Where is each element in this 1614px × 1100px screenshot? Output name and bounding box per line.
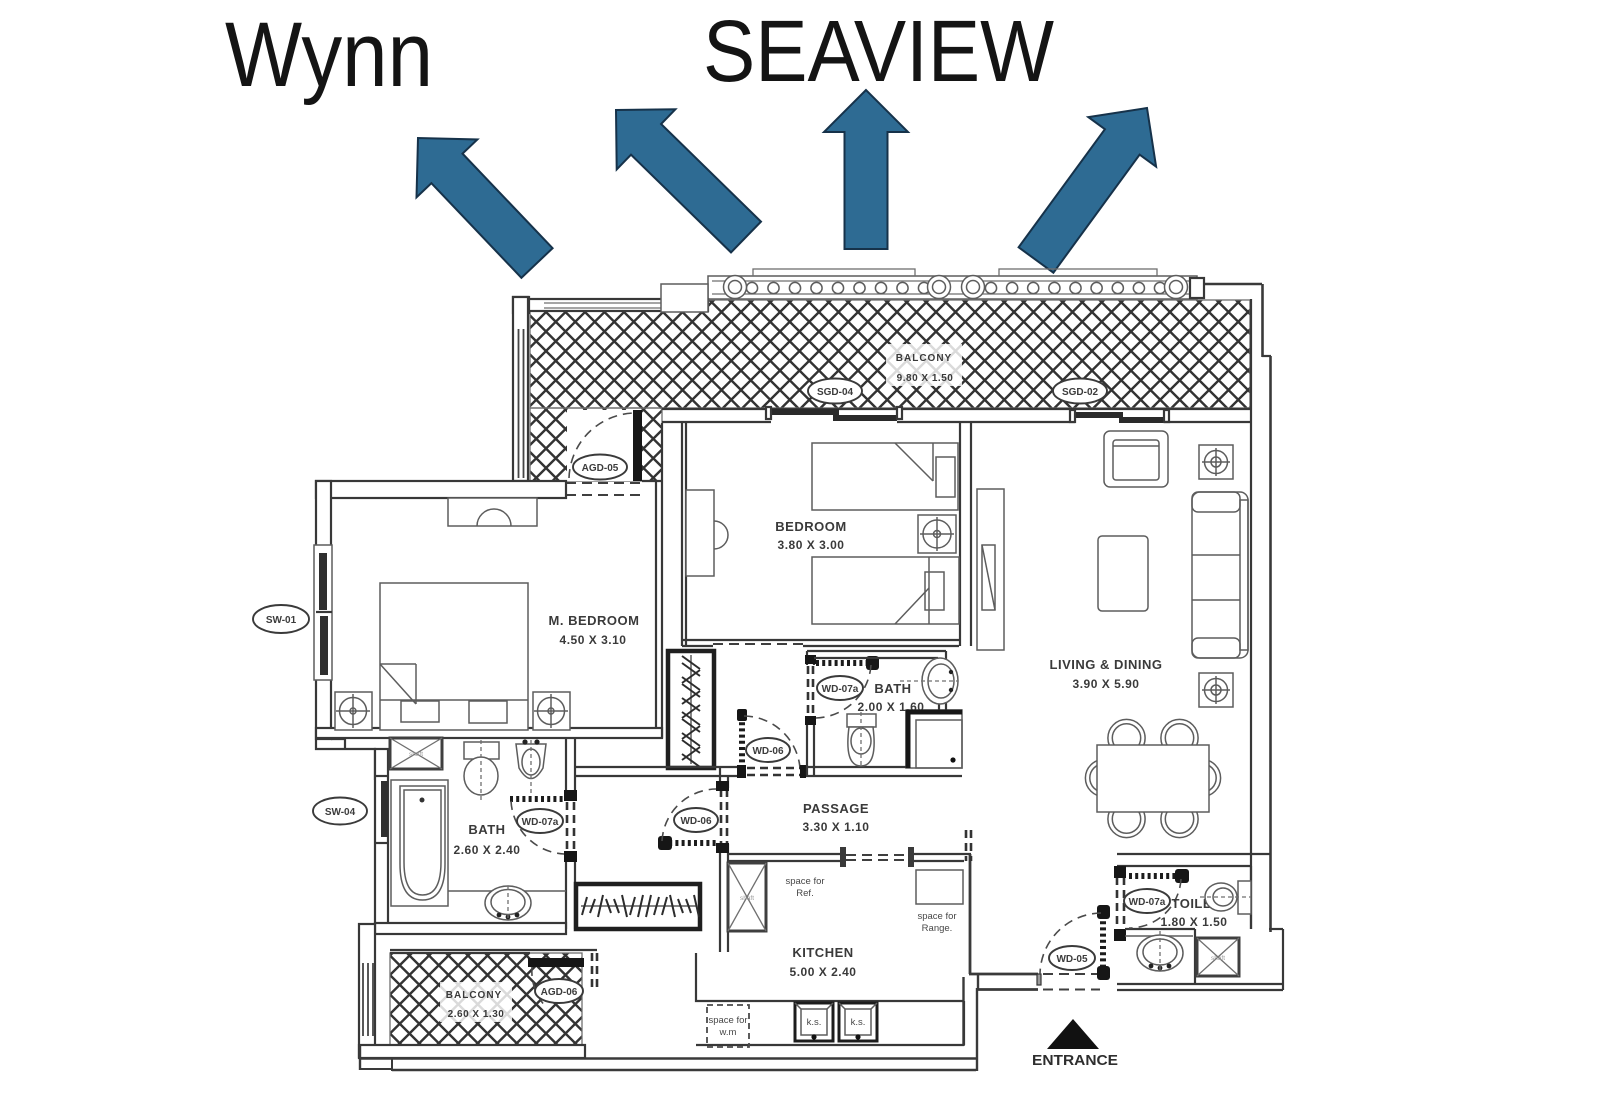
svg-text:w.m: w.m xyxy=(719,1027,737,1038)
svg-text:Ref.: Ref. xyxy=(796,888,813,899)
svg-text:M. BEDROOM: M. BEDROOM xyxy=(549,613,640,628)
svg-text:shaft: shaft xyxy=(740,895,754,902)
svg-text:3.90 X 5.90: 3.90 X 5.90 xyxy=(1073,677,1140,691)
svg-text:WD-07a: WD-07a xyxy=(822,684,859,695)
svg-text:BALCONY: BALCONY xyxy=(896,353,952,364)
svg-text:WD-07a: WD-07a xyxy=(522,817,559,828)
svg-text:BALCONY: BALCONY xyxy=(446,990,502,1001)
svg-text:SW-04: SW-04 xyxy=(325,807,356,818)
svg-text:BATH: BATH xyxy=(468,822,505,837)
svg-text:SGD-02: SGD-02 xyxy=(1062,387,1099,398)
svg-text:9.80 X 1.50: 9.80 X 1.50 xyxy=(897,373,954,384)
svg-text:WD-06: WD-06 xyxy=(752,746,784,757)
svg-text:Range.: Range. xyxy=(922,923,953,934)
svg-text:space for: space for xyxy=(785,876,824,887)
svg-text:4.50 X 3.10: 4.50 X 3.10 xyxy=(560,633,627,647)
svg-text:3.80 X 3.00: 3.80 X 3.00 xyxy=(778,538,845,552)
svg-text:2.60 X 1.30: 2.60 X 1.30 xyxy=(448,1009,505,1020)
svg-text:SW-01: SW-01 xyxy=(266,615,297,626)
svg-text:Wynn: Wynn xyxy=(225,4,433,106)
svg-text:k.s.: k.s. xyxy=(807,1017,822,1028)
svg-text:WD-06: WD-06 xyxy=(680,816,712,827)
svg-text:BEDROOM: BEDROOM xyxy=(775,519,846,534)
svg-text:1.80 X 1.50: 1.80 X 1.50 xyxy=(1161,915,1228,929)
svg-text:KITCHEN: KITCHEN xyxy=(792,945,853,960)
svg-text:LIVING & DINING: LIVING & DINING xyxy=(1050,657,1163,672)
svg-text:space for: space for xyxy=(917,911,956,922)
svg-text:SEAVIEW: SEAVIEW xyxy=(703,3,1054,100)
svg-text:space for: space for xyxy=(708,1015,747,1026)
svg-text:SGD-04: SGD-04 xyxy=(817,387,854,398)
svg-text:shaft: shaft xyxy=(1211,955,1225,962)
svg-text:PASSAGE: PASSAGE xyxy=(803,801,869,816)
svg-text:AGD-05: AGD-05 xyxy=(582,463,619,474)
svg-text:WD-05: WD-05 xyxy=(1056,954,1088,965)
svg-text:WD-07a: WD-07a xyxy=(1129,897,1166,908)
svg-text:5.00 X 2.40: 5.00 X 2.40 xyxy=(790,965,857,979)
svg-text:2.60 X 2.40: 2.60 X 2.40 xyxy=(454,843,521,857)
svg-text:BATH: BATH xyxy=(874,681,911,696)
svg-text:3.30 X 1.10: 3.30 X 1.10 xyxy=(803,820,870,834)
svg-text:ENTRANCE: ENTRANCE xyxy=(1032,1053,1118,1069)
svg-text:k.s.: k.s. xyxy=(851,1017,866,1028)
svg-text:AGD-06: AGD-06 xyxy=(541,987,578,998)
svg-text:shaft: shaft xyxy=(409,751,423,758)
